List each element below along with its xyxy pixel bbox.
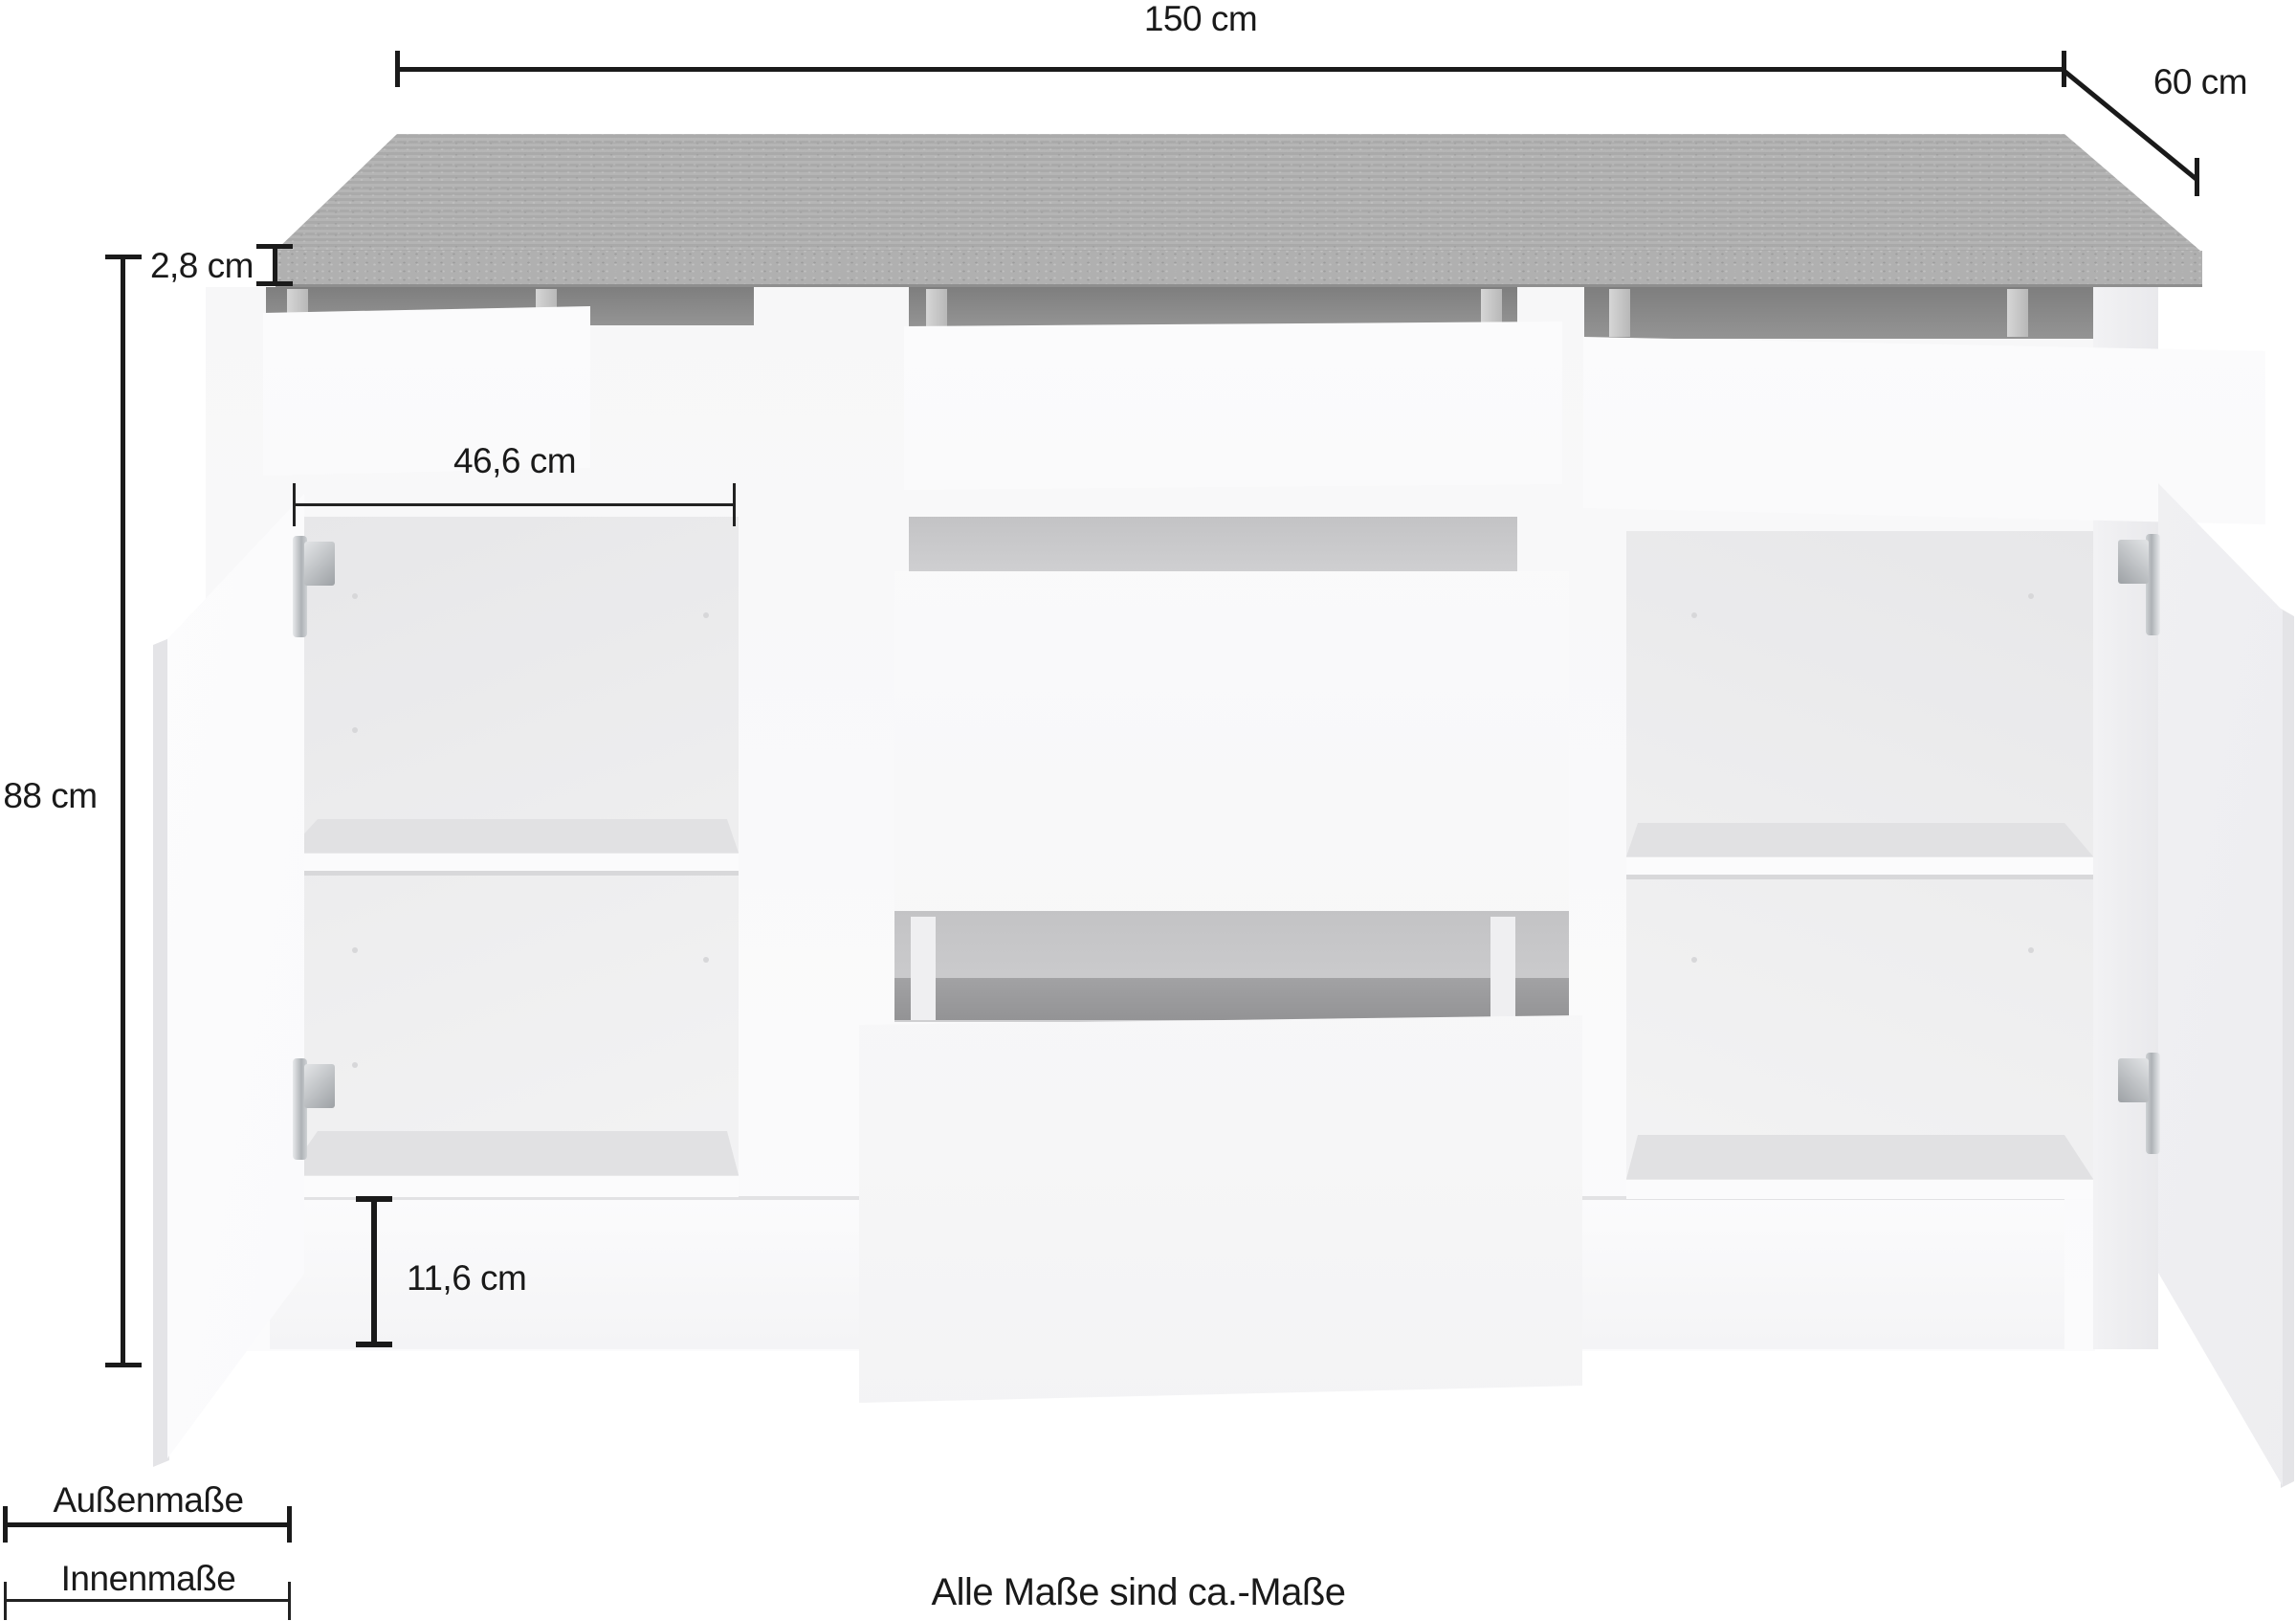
- shelf-pin-hole: [352, 727, 358, 733]
- product-dimension-diagram: 150 cm 60 cm 2,8 cm 88 cm 46,6 cm 11,6 c…: [0, 0, 2296, 1621]
- dimension-label-height: 88 cm: [0, 777, 100, 816]
- hinge: [2114, 1053, 2160, 1154]
- shelf-pin-hole: [2028, 593, 2034, 599]
- legend-outer-line: [5, 1522, 290, 1527]
- shelf-pin-hole: [352, 593, 358, 599]
- dimension-tick: [3, 1506, 8, 1543]
- dimension-label-depth: 60 cm: [2124, 63, 2277, 102]
- dimension-tick: [356, 1342, 392, 1347]
- dimension-tick: [2195, 158, 2199, 196]
- hinge: [2114, 534, 2160, 635]
- footnote-text: Alle Maße sind ca.-Maße: [909, 1571, 1368, 1613]
- dimension-line-total-width: [397, 67, 2064, 72]
- legend-inner-label: Innenmaße: [0, 1560, 297, 1599]
- shelf-pin-hole: [2028, 947, 2034, 953]
- right-floor-front-edge: [1626, 1179, 2093, 1199]
- middle-drawer-box-rear: [894, 978, 1569, 1020]
- dimension-line-worktop-thickness: [273, 247, 277, 285]
- drawer-rail: [1609, 289, 1630, 337]
- drawer-rail: [1490, 917, 1515, 1020]
- hinge-arm: [2118, 540, 2149, 584]
- hinge-arm: [2118, 1058, 2149, 1102]
- dimension-line-plinth-height: [371, 1199, 377, 1345]
- hinge-arm: [304, 1064, 335, 1108]
- hinge: [293, 536, 339, 637]
- dimension-label-inner-width: 46,6 cm: [395, 442, 634, 481]
- left-floor-front-edge: [287, 1175, 739, 1197]
- hinge: [293, 1058, 339, 1160]
- shelf-pin-hole: [703, 612, 709, 618]
- dimension-tick: [395, 51, 400, 87]
- shelf-pin-hole: [352, 947, 358, 953]
- right-shelf-shadow: [1626, 875, 2093, 879]
- left-shelf-shadow: [287, 871, 739, 876]
- dimension-tick: [356, 1196, 392, 1202]
- drawer-rail: [911, 917, 936, 1020]
- drawer-rail: [926, 289, 947, 327]
- left-shelf-front-edge: [287, 853, 739, 872]
- dimension-tick: [4, 1582, 7, 1620]
- dimension-label-total-width: 150 cm: [1081, 0, 1320, 39]
- hinge-arm: [304, 542, 335, 586]
- dimension-tick: [288, 1582, 291, 1620]
- shelf-pin-hole: [1691, 957, 1697, 963]
- dimension-tick: [256, 244, 293, 249]
- dimension-tick: [293, 483, 296, 526]
- shelf-pin-hole: [1691, 612, 1697, 618]
- dimension-tick: [733, 483, 736, 526]
- worktop-bottom-edge: [276, 284, 2202, 287]
- drawer-rail: [2007, 289, 2028, 337]
- middle-gap-upper: [909, 517, 1517, 571]
- middle-drawer-cavity: [909, 287, 1517, 327]
- dimension-line-inner-width: [294, 503, 735, 506]
- drawer-rail: [1481, 289, 1502, 327]
- dimension-tick: [256, 281, 293, 286]
- dimension-tick: [105, 255, 142, 259]
- shelf-pin-hole: [703, 957, 709, 963]
- dimension-tick: [287, 1506, 292, 1543]
- right-shelf-front-edge: [1626, 856, 2093, 876]
- dimension-label-plinth-height: 11,6 cm: [407, 1259, 598, 1299]
- shelf-pin-hole: [352, 1062, 358, 1068]
- dimension-tick: [105, 1363, 142, 1367]
- legend-inner-line: [5, 1599, 290, 1602]
- dimension-line-height: [121, 256, 125, 1366]
- legend-outer-label: Außenmaße: [0, 1481, 297, 1521]
